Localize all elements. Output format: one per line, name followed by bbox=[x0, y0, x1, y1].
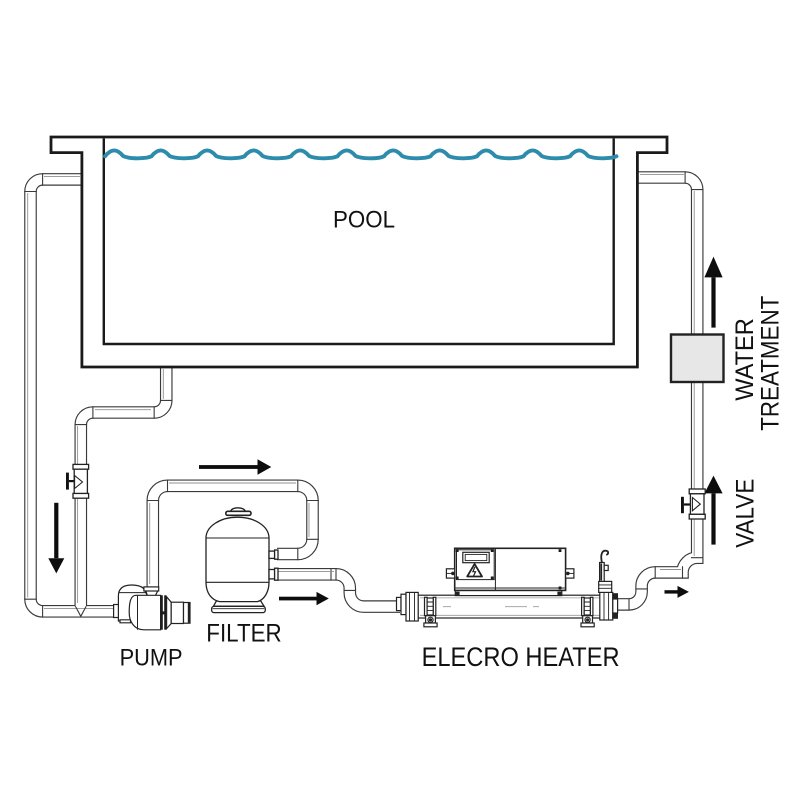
svg-text:ELECRO HEATER: ELECRO HEATER bbox=[422, 642, 620, 672]
svg-text:FILTER: FILTER bbox=[206, 619, 281, 647]
svg-text:VALVE: VALVE bbox=[731, 479, 759, 548]
svg-text:PUMP: PUMP bbox=[120, 645, 183, 671]
svg-text:POOL: POOL bbox=[333, 207, 395, 234]
svg-text:TREATMENT: TREATMENT bbox=[757, 296, 785, 431]
svg-text:WATER: WATER bbox=[731, 318, 759, 401]
